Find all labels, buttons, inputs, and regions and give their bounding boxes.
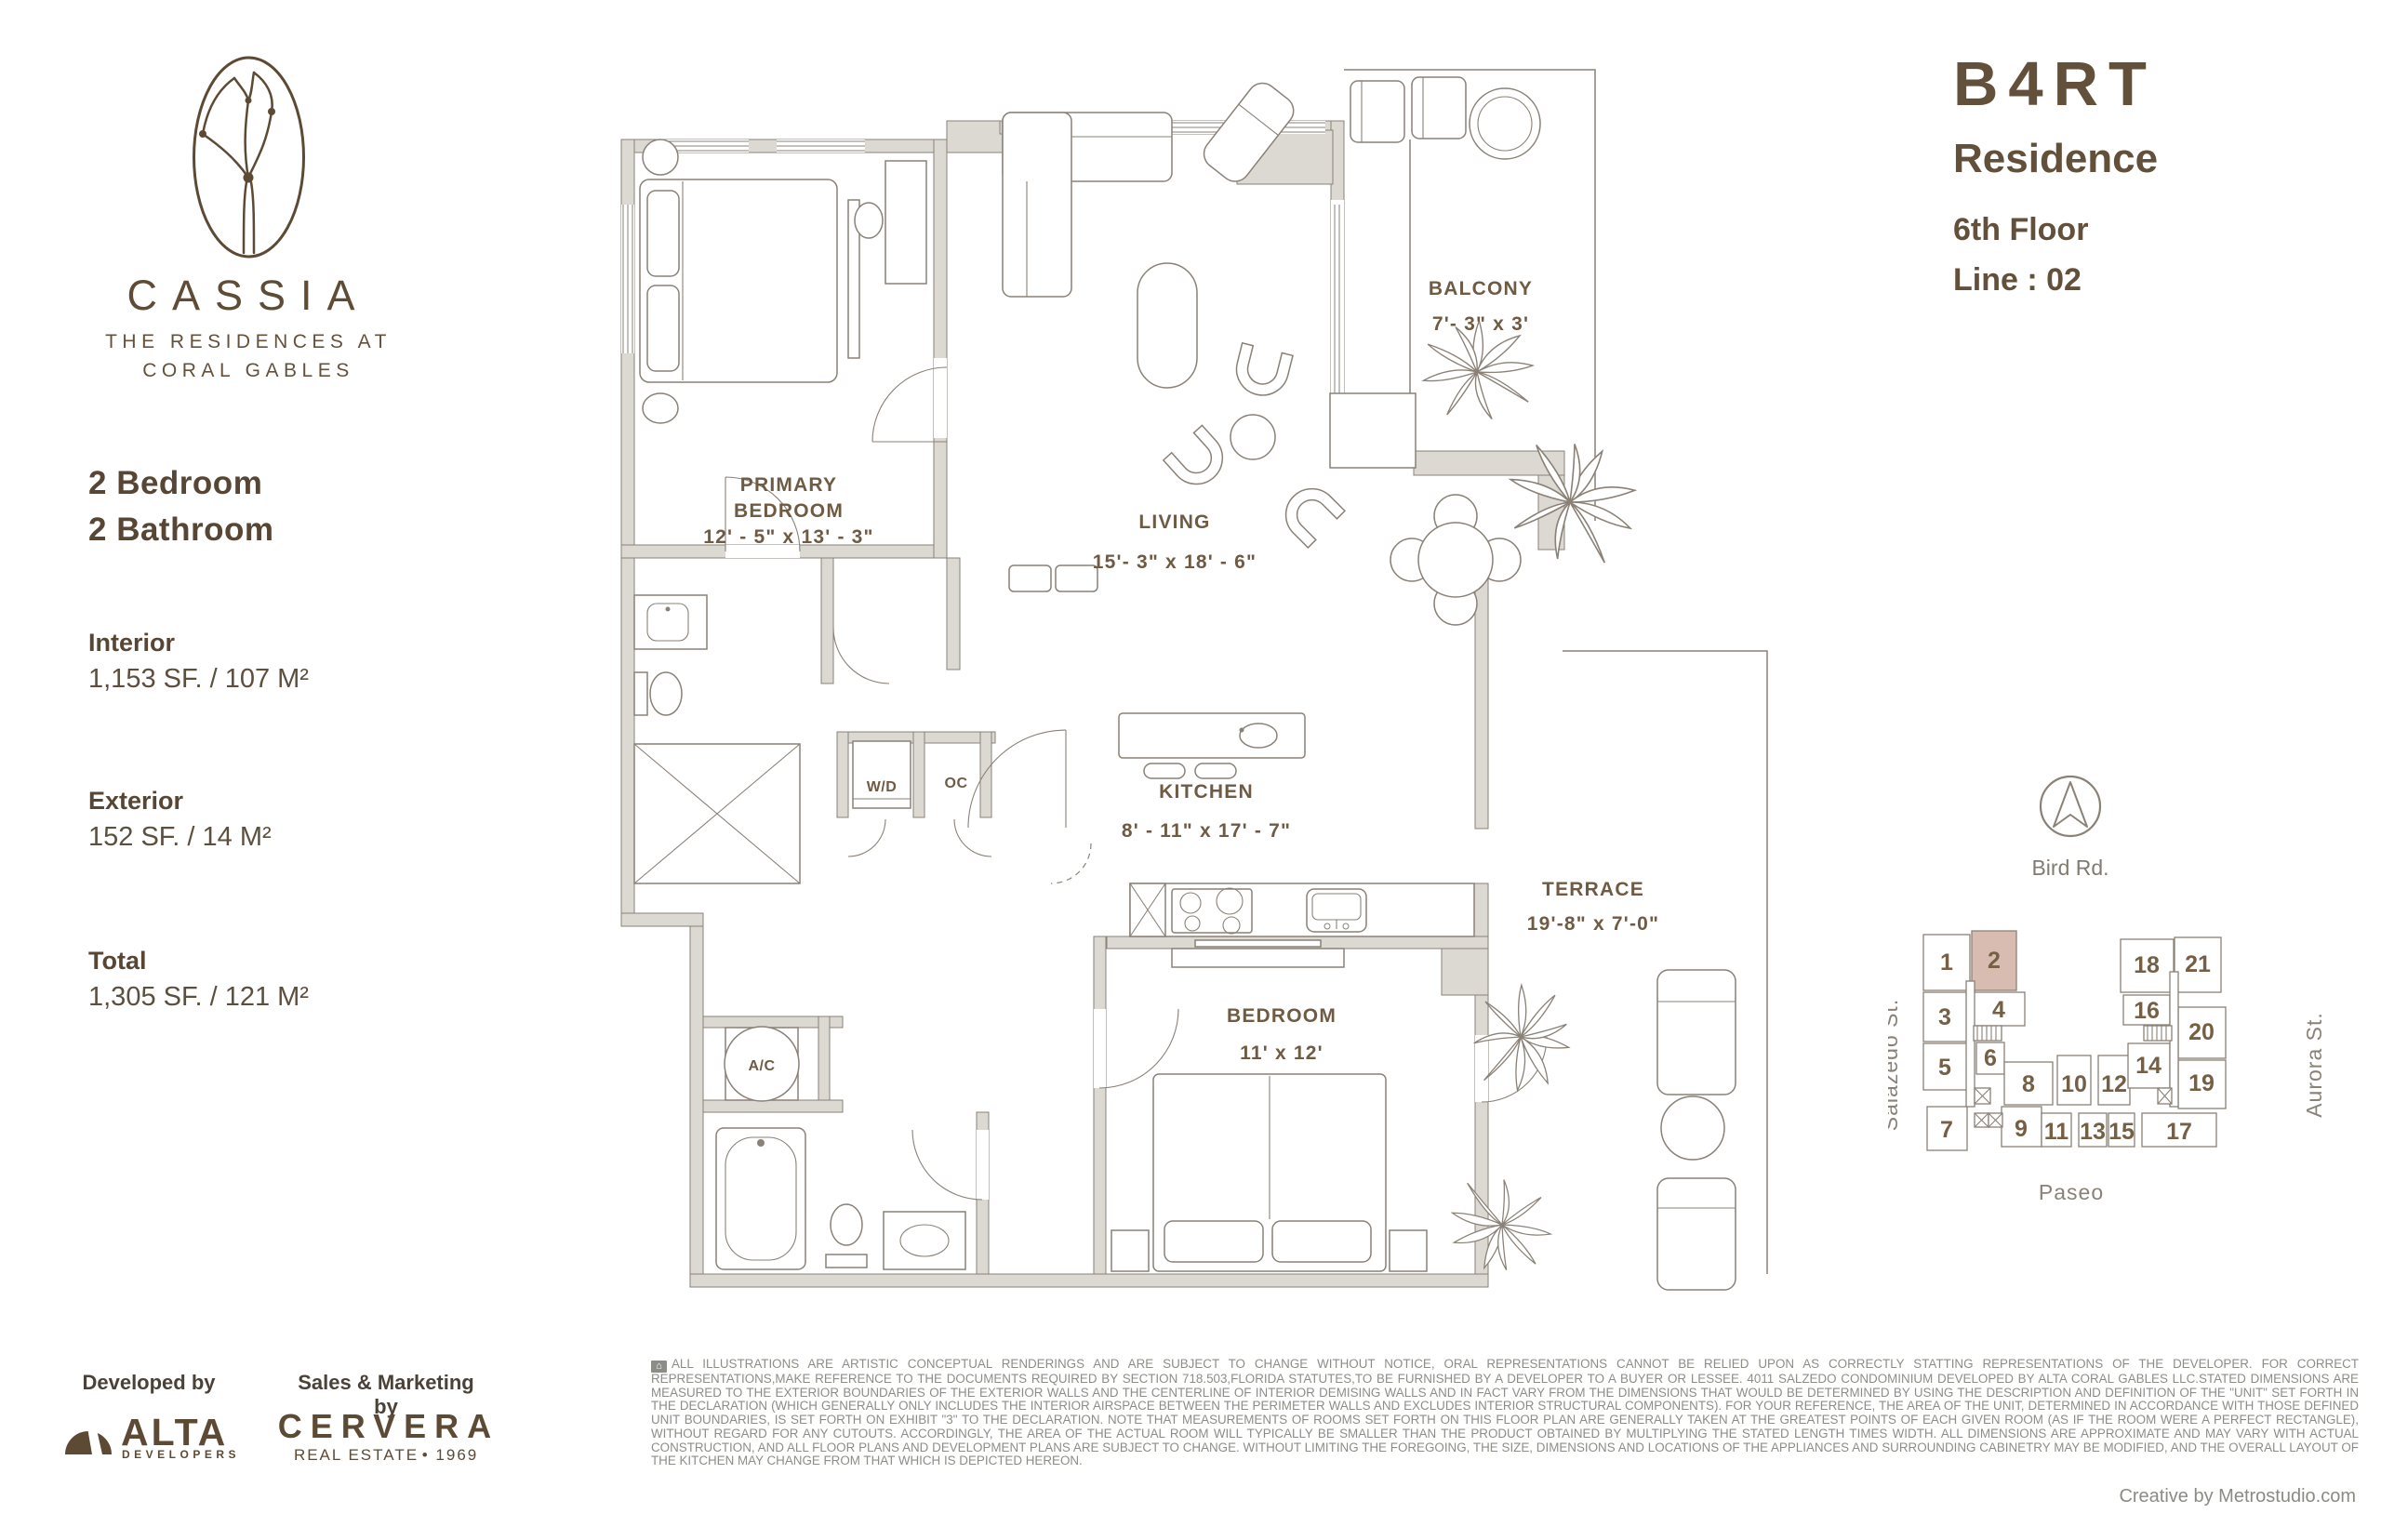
- street-label-paseo: Paseo: [2039, 1180, 2104, 1204]
- svg-text:REAL ESTATE: REAL ESTATE: [294, 1446, 419, 1464]
- svg-text:16: 16: [2134, 998, 2160, 1024]
- legal-disclaimer-text: ALL ILLUSTRATIONS ARE ARTISTIC CONCEPTUA…: [651, 1357, 2359, 1467]
- bedroom-dims: 11' x 12': [1240, 1042, 1324, 1064]
- legal-disclaimer: ⌂ALL ILLUSTRATIONS ARE ARTISTIC CONCEPTU…: [651, 1358, 2359, 1468]
- primary-bedroom-label-1: PRIMARY: [740, 474, 837, 496]
- keyplan: 1 2 3 4 5 6 7 8 9 10 11 12 13 14 15 16 1…: [1888, 916, 2353, 1237]
- svg-text:19: 19: [2188, 1070, 2215, 1096]
- unit-line: Line : 02: [1953, 262, 2082, 299]
- balcony-dims: 7'- 3" x 3': [1432, 313, 1529, 335]
- alta-developers-logo: ALTA DEVELOPERS: [63, 1401, 249, 1462]
- kitchen-label: KITCHEN: [1159, 781, 1254, 803]
- brand-tagline-line2: CORAL GABLES: [56, 356, 441, 385]
- terrace-furniture: [1657, 970, 1736, 1290]
- total-value: 1,305 SF. / 121 M²: [88, 982, 309, 1013]
- street-label-bird-rd: Bird Rd.: [1996, 856, 2145, 881]
- svg-text:6: 6: [1984, 1045, 1997, 1071]
- north-compass-icon: [2037, 773, 2104, 840]
- svg-text:3: 3: [1938, 1004, 1951, 1030]
- second-bedroom-furniture: [1111, 940, 1427, 1271]
- primary-bath-fixtures: [634, 595, 800, 883]
- balcony-label: BALCONY: [1429, 278, 1533, 299]
- svg-text:10: 10: [2061, 1071, 2087, 1097]
- second-bath-fixtures: [716, 1128, 965, 1269]
- svg-text:18: 18: [2134, 952, 2160, 978]
- unit-type: Residence: [1953, 136, 2158, 182]
- plan-door-gaps: [725, 200, 1488, 1200]
- svg-text:15: 15: [2108, 1119, 2135, 1145]
- washer-dryer-label: W/D: [867, 779, 898, 795]
- interior-label: Interior: [88, 629, 175, 657]
- svg-text:• 1969: • 1969: [422, 1446, 479, 1464]
- svg-text:11: 11: [2044, 1119, 2069, 1145]
- unit-floor: 6th Floor: [1953, 212, 2088, 248]
- svg-text:13: 13: [2080, 1119, 2106, 1145]
- keyplan-units: [1923, 931, 2226, 1150]
- living-dims: 15'- 3" x 18' - 6": [1093, 551, 1257, 573]
- svg-text:14: 14: [2135, 1053, 2162, 1079]
- svg-text:20: 20: [2188, 1019, 2215, 1045]
- cervera-logo: CERVERA REAL ESTATE • 1969: [268, 1404, 510, 1464]
- svg-text:DEVELOPERS: DEVELOPERS: [122, 1448, 240, 1461]
- kitchen-dims: 8' - 11" x 17' - 7": [1122, 820, 1291, 842]
- cassia-logo: [191, 54, 307, 260]
- dining-set: [1390, 495, 1521, 625]
- kitchen-fixtures: [1009, 565, 1474, 936]
- living-label: LIVING: [1138, 511, 1210, 533]
- primary-bedroom-dims: 12' - 5" x 13' - 3": [703, 526, 873, 548]
- unit-model: B4RT: [1953, 48, 2157, 120]
- floorplan-brochure-page: CASSIA THE RESIDENCES AT CORAL GABLES 2 …: [0, 0, 2381, 1540]
- floor-plan: PRIMARY BEDROOM 12' - 5" x 13' - 3" LIVI…: [586, 51, 1823, 1307]
- svg-text:CERVERA: CERVERA: [278, 1407, 499, 1445]
- creative-credit: Creative by Metrostudio.com: [2119, 1486, 2356, 1507]
- brand-tagline-line1: THE RESIDENCES AT: [56, 327, 441, 356]
- terrace-dims: 19'-8" x 7'-0": [1527, 913, 1659, 935]
- svg-text:12: 12: [2101, 1071, 2127, 1097]
- primary-bedroom-furniture: [640, 139, 926, 423]
- exterior-label: Exterior: [88, 787, 183, 816]
- svg-text:1: 1: [1940, 949, 1953, 976]
- svg-text:21: 21: [2185, 951, 2211, 977]
- developed-by-label: Developed by: [56, 1371, 242, 1395]
- living-furniture: [1003, 77, 1416, 548]
- pantry-door-dashed: [1051, 843, 1091, 883]
- brand-name: CASSIA: [56, 272, 441, 320]
- primary-bedroom-label-2: BEDROOM: [734, 500, 844, 522]
- total-label: Total: [88, 947, 147, 976]
- street-label-salazedo: Salazedo St.: [1888, 999, 1902, 1131]
- svg-text:2: 2: [1988, 948, 2001, 974]
- ac-label: A/C: [748, 1058, 775, 1074]
- svg-text:9: 9: [2015, 1116, 2028, 1142]
- closet-fixtures: [853, 741, 911, 808]
- balcony-furniture: [1350, 77, 1540, 159]
- oc-closet-label: OC: [945, 776, 968, 791]
- svg-text:7: 7: [1940, 1117, 1953, 1143]
- terrace-label: TERRACE: [1542, 879, 1644, 900]
- svg-text:5: 5: [1938, 1055, 1951, 1081]
- bedroom-label: BEDROOM: [1227, 1005, 1337, 1027]
- svg-text:8: 8: [2022, 1071, 2035, 1097]
- interior-value: 1,153 SF. / 107 M²: [88, 664, 309, 695]
- unit-bathrooms: 2 Bathroom: [88, 511, 273, 549]
- brand-tagline: THE RESIDENCES AT CORAL GABLES: [56, 327, 441, 385]
- svg-text:4: 4: [1992, 997, 2005, 1023]
- exterior-value: 152 SF. / 14 M²: [88, 822, 272, 853]
- unit-bedrooms: 2 Bedroom: [88, 465, 262, 502]
- keyplan-stairs-icon: [1974, 1026, 2172, 1041]
- street-label-aurora: Aurora St.: [2302, 1012, 2326, 1118]
- svg-text:17: 17: [2166, 1119, 2192, 1145]
